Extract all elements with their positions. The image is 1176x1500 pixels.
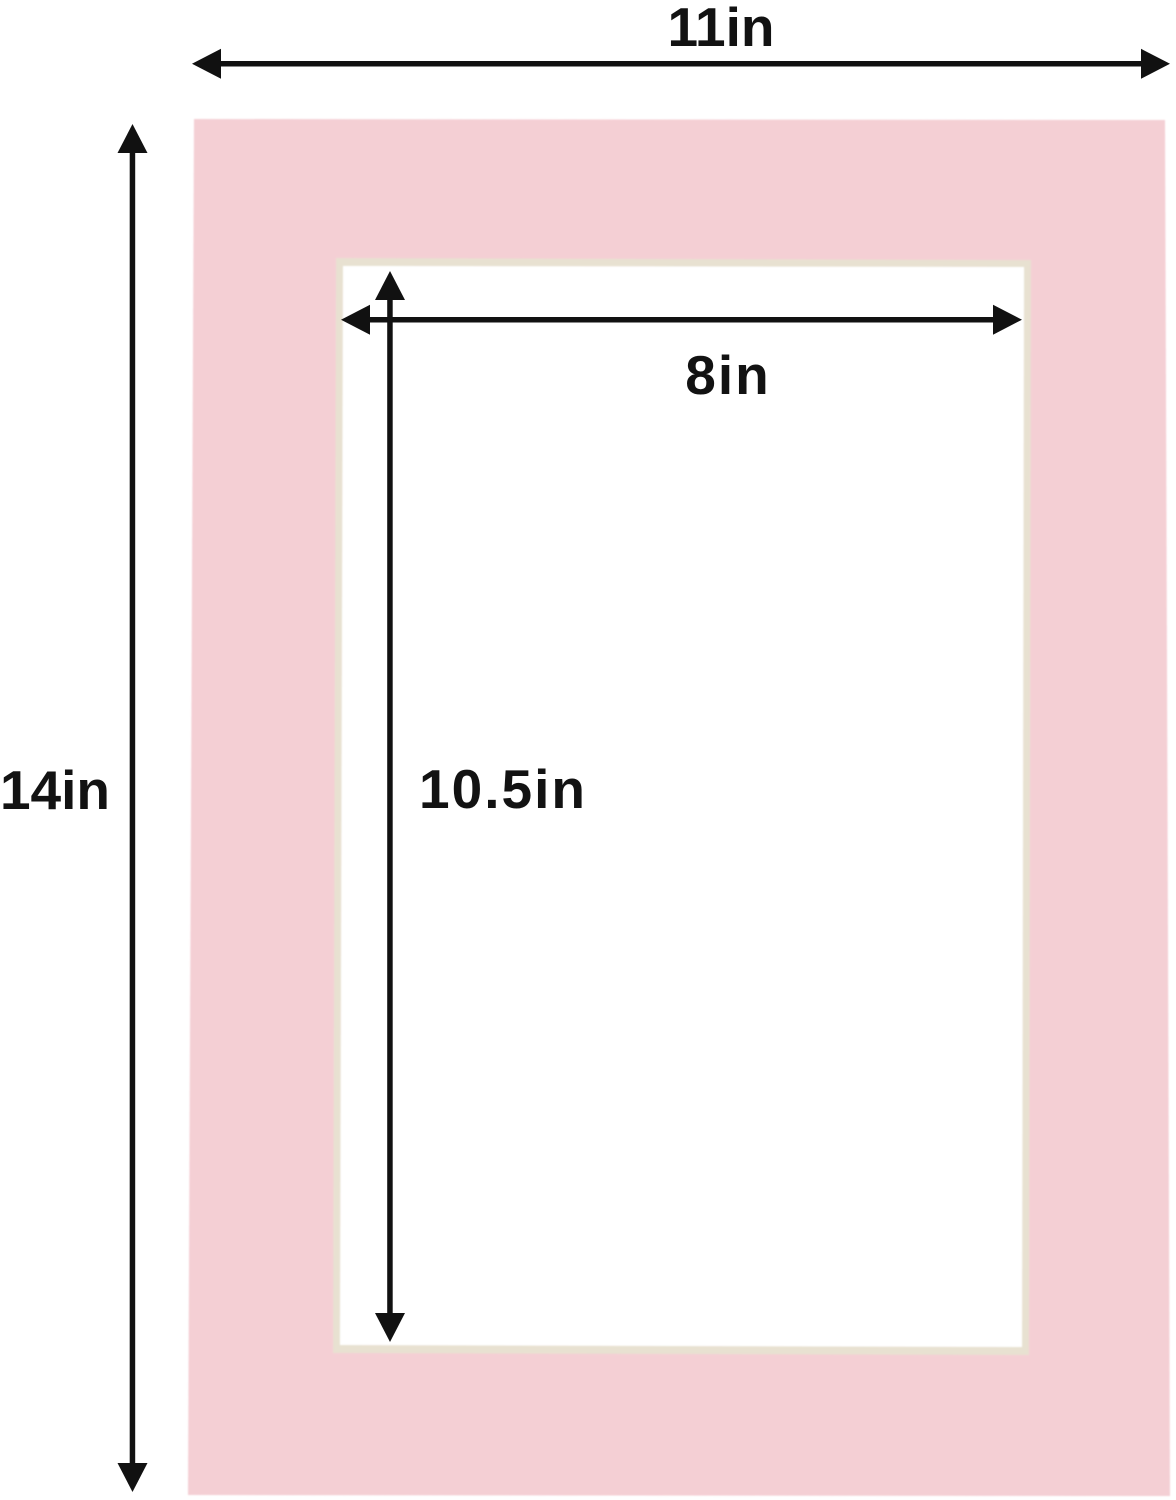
svg-text:8in: 8in xyxy=(685,344,770,406)
svg-text:11in: 11in xyxy=(667,0,774,58)
svg-text:14in: 14in xyxy=(0,759,110,821)
svg-text:10.5in: 10.5in xyxy=(419,758,587,820)
